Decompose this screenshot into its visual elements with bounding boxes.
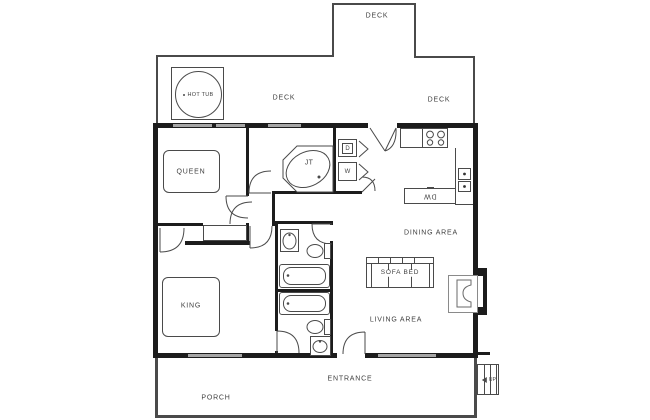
porch-edge-left [155, 358, 158, 417]
hot-tub-jet-icon [183, 94, 185, 96]
washer-label: W [345, 169, 351, 175]
hot-tub-label: HOT TUB [187, 92, 213, 98]
sofa-arm-right [429, 263, 430, 287]
wall-closet-south [185, 241, 250, 245]
deck-bump-left-edge [332, 3, 334, 57]
wall-bath-west-lower [275, 351, 278, 358]
wall-left [153, 123, 158, 358]
floor-plan: HOT TUB [0, 0, 650, 420]
wall-jt-bath-south [272, 191, 362, 194]
wall-bath-east-stub [330, 221, 333, 225]
sofa-back-tick [378, 257, 379, 263]
toilet-bowl-icon [307, 245, 323, 258]
sofa-back-tick [402, 257, 403, 263]
wall-laundry-divider [333, 123, 336, 193]
window [378, 354, 436, 357]
wall-right [473, 123, 478, 358]
jetted-tub [280, 143, 337, 195]
sofa-back-tick [414, 257, 415, 263]
deck-edge-right [473, 56, 475, 124]
dryer-label: D [345, 146, 349, 152]
deck-edge-left [156, 55, 158, 125]
wall-bath-north [275, 221, 333, 224]
porch-label: PORCH [201, 395, 230, 402]
bathtub-basin [283, 295, 326, 312]
bathtub-basin [283, 267, 326, 285]
deck-bump-right-edge [414, 3, 416, 57]
stove [422, 128, 448, 148]
laundry-door-swing [362, 177, 375, 192]
entrance-door-opening [337, 352, 365, 359]
wall-bath-west-upper [275, 221, 278, 331]
window [188, 354, 242, 357]
king-bed-label: KING [181, 303, 201, 310]
hot-tub: HOT TUB [175, 71, 222, 118]
window [173, 124, 212, 127]
closet [203, 225, 247, 241]
sofa-arm-left [371, 263, 372, 287]
dishwasher-label: DW [423, 193, 436, 200]
stairs-up-indicator: UP [482, 377, 496, 383]
up-arrow-icon [482, 377, 487, 383]
kitchen-sink-basin [458, 181, 471, 192]
kitchen-sink-basin [458, 168, 471, 180]
deck-main-label: DECK [273, 95, 296, 102]
jetted-tub-label: JT [305, 160, 314, 167]
bath-a-door-swing [312, 224, 332, 244]
jt-bath-door-swing [249, 171, 271, 193]
window [216, 124, 245, 127]
jetted-tub-faucet-icon [318, 176, 321, 179]
deck-right-label: DECK [428, 97, 451, 104]
vanity-sink [280, 229, 299, 252]
wall-hall [153, 223, 203, 226]
queen-door-swing [226, 196, 248, 218]
sofa-back-tick [390, 257, 391, 263]
bath-b-door-swing [277, 331, 299, 353]
sofa-back-line [367, 263, 433, 264]
kitchen-deck-door-opening [368, 122, 397, 129]
porch-edge-bottom [155, 415, 477, 418]
entrance-door-swing [343, 332, 365, 354]
island-handle [427, 187, 434, 189]
toilet-bowl-icon [307, 321, 323, 334]
king-door-swing [250, 226, 272, 248]
bifold-door-icon [359, 164, 368, 180]
vanity-sink [310, 336, 331, 356]
king-closet-door-swing [160, 228, 184, 252]
queen-bed-label: QUEEN [177, 169, 206, 176]
wall-stub-bottom-right [478, 352, 490, 355]
deck-top-label: DECK [366, 13, 389, 20]
stairs-up-label: UP [489, 377, 496, 383]
wall-queen-bath-divider [246, 123, 249, 196]
fireplace [448, 275, 478, 313]
sofa-bed-label: SOFA BED [379, 270, 422, 277]
bifold-door-icon [359, 141, 368, 157]
kitchen-deck-door-swing [370, 128, 396, 151]
fireplace-bump-back [483, 268, 487, 315]
deck-edge-top-right [414, 56, 475, 58]
deck-edge-top-left [156, 55, 334, 57]
deck-bump-top-edge [332, 3, 416, 5]
living-area-label: LIVING AREA [370, 317, 422, 324]
vestibule-door-swing [230, 202, 252, 224]
window [268, 124, 301, 127]
entrance-label: ENTRANCE [328, 376, 373, 383]
jetted-tub-platform [283, 146, 333, 192]
kitchen-counter [400, 128, 423, 148]
hot-tub-platform: HOT TUB [171, 67, 224, 120]
dining-area-label: DINING AREA [404, 230, 458, 237]
